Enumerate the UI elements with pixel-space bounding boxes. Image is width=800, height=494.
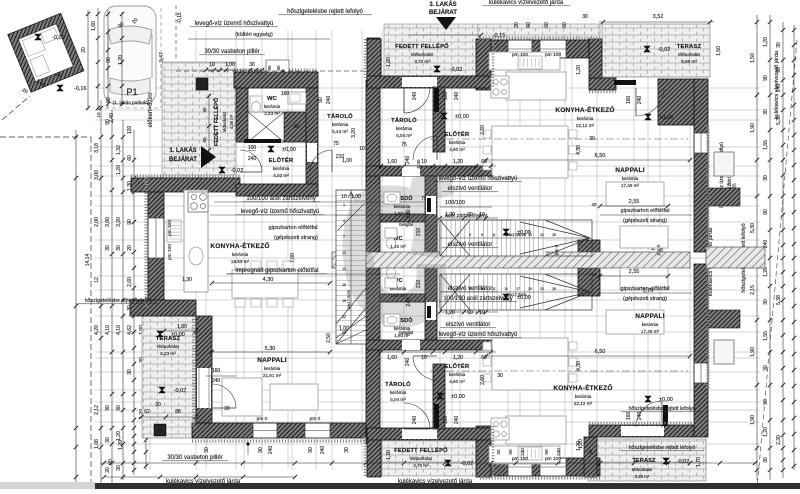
svg-text:üvegfal: üvegfal (399, 330, 413, 335)
svg-text:-0,02: -0,02 (450, 67, 463, 73)
svg-text:térburkolat: térburkolat (411, 52, 433, 57)
svg-text:NAPPALI: NAPPALI (257, 357, 286, 364)
svg-text:1,20: 1,20 (386, 57, 392, 67)
svg-text:5,30: 5,30 (416, 159, 421, 168)
svg-text:1,00: 1,00 (351, 194, 361, 200)
svg-text:elszívó ventilátor: elszívó ventilátor (448, 242, 493, 248)
svg-text:pm 100: pm 100 (512, 52, 528, 58)
svg-text:30: 30 (588, 449, 593, 455)
svg-text:3,70 m²: 3,70 m² (414, 59, 430, 64)
svg-text:19,53 m²: 19,53 m² (231, 259, 250, 264)
svg-text:240: 240 (454, 416, 460, 425)
svg-text:17,49 m²: 17,49 m² (621, 183, 640, 188)
svg-text:FEDETT FELLÉPŐ: FEDETT FELLÉPŐ (394, 446, 448, 454)
svg-text:60: 60 (467, 212, 473, 218)
svg-text:30: 30 (496, 449, 501, 455)
svg-text:14: 14 (504, 287, 508, 291)
svg-text:2,43 m²: 2,43 m² (264, 111, 280, 116)
svg-text:hőszigetelésbe rejtett lefolyó: hőszigetelésbe rejtett lefolyó (629, 445, 696, 451)
svg-text:kerámia: kerámia (577, 116, 594, 121)
svg-text:1,90: 1,90 (750, 415, 756, 425)
svg-text:1,32: 1,32 (116, 145, 122, 155)
svg-text:30/30 vasbeton pillér: 30/30 vasbeton pillér (167, 455, 222, 461)
svg-text:240: 240 (212, 378, 221, 384)
svg-text:30: 30 (204, 447, 210, 453)
svg-text:75: 75 (333, 141, 339, 147)
svg-text:10: 10 (359, 146, 365, 152)
svg-text:4,20: 4,20 (94, 325, 100, 335)
svg-text:16: 16 (342, 283, 346, 287)
svg-text:100/100: 100/100 (445, 200, 465, 206)
svg-text:100/100 acél zártszelvény: 100/100 acél zártszelvény (443, 296, 512, 302)
svg-text:30: 30 (582, 14, 588, 20)
svg-text:1,50: 1,50 (716, 46, 722, 56)
svg-text:90: 90 (763, 75, 769, 81)
svg-text:2,55: 2,55 (629, 269, 640, 275)
svg-text:1,90: 1,90 (750, 347, 756, 357)
svg-text:30: 30 (116, 465, 122, 471)
svg-text:TÁROLÓ: TÁROLÓ (391, 116, 417, 124)
svg-text:1,20: 1,20 (576, 65, 582, 75)
svg-text:4,62: 4,62 (127, 325, 133, 335)
svg-text:térburkolat: térburkolat (678, 52, 700, 57)
svg-text:1,20: 1,20 (763, 267, 769, 277)
svg-text:1,30: 1,30 (182, 277, 192, 283)
svg-text:5,04 m²: 5,04 m² (390, 397, 406, 402)
svg-text:2,12: 2,12 (94, 405, 100, 415)
svg-text:pm 100: pm 100 (167, 220, 173, 236)
svg-text:4,60 m²: 4,60 m² (449, 379, 465, 384)
svg-text:5,98 m²: 5,98 m² (681, 59, 697, 64)
svg-text:kerámia: kerámia (449, 372, 466, 377)
svg-text:±0,00: ±0,00 (455, 114, 469, 120)
svg-text:kerámia: kerámia (642, 322, 659, 327)
svg-text:3. LAKÁS: 3. LAKÁS (429, 1, 456, 8)
svg-text:30: 30 (105, 245, 111, 251)
svg-text:100: 100 (248, 145, 257, 151)
svg-text:30: 30 (763, 299, 769, 305)
svg-text:90: 90 (258, 447, 264, 453)
svg-text:90: 90 (127, 219, 133, 225)
svg-text:120: 120 (127, 126, 133, 135)
svg-text:térburkolat: térburkolat (632, 467, 653, 472)
svg-text:kerámia: kerámia (264, 366, 281, 371)
svg-text:elszívó ventilátor: elszívó ventilátor (446, 322, 491, 328)
svg-text:3,18: 3,18 (94, 143, 100, 153)
svg-text:100: 100 (443, 92, 449, 101)
svg-text:kerámia: kerámia (394, 204, 411, 209)
svg-text:3,00: 3,00 (94, 170, 100, 180)
svg-text:FEDETT FELLÉPŐ: FEDETT FELLÉPŐ (212, 97, 220, 146)
svg-text:160: 160 (626, 412, 632, 421)
svg-text:1: 1 (343, 203, 345, 207)
svg-text:pm 100: pm 100 (167, 244, 173, 260)
svg-text:4,30: 4,30 (576, 145, 582, 155)
svg-text:levegő-víz üzemű hőszivattyú: levegő-víz üzemű hőszivattyú (439, 332, 518, 338)
svg-text:20: 20 (105, 467, 111, 473)
svg-text:ELŐTÉR: ELŐTÉR (269, 156, 294, 164)
svg-text:2,60: 2,60 (480, 125, 486, 135)
svg-text:±0,00: ±0,00 (659, 397, 673, 403)
svg-text:20: 20 (528, 287, 532, 291)
svg-text:pm 100: pm 100 (545, 52, 561, 58)
svg-text:240: 240 (326, 96, 332, 105)
svg-text:5,30: 5,30 (750, 223, 756, 233)
svg-text:kerámia: kerámia (390, 390, 407, 395)
svg-text:240: 240 (454, 92, 460, 101)
svg-text:3,80: 3,80 (105, 217, 111, 227)
svg-text:-0,02: -0,02 (677, 459, 690, 465)
svg-text:30: 30 (344, 447, 350, 453)
svg-text:TÁROLÓ: TÁROLÓ (327, 112, 353, 120)
svg-text:16x17,5/29: 16x17,5/29 (346, 289, 351, 310)
svg-text:KONYHA-ÉTKEZŐ: KONYHA-ÉTKEZŐ (553, 383, 612, 392)
svg-text:10: 10 (209, 62, 215, 68)
svg-text:1,00: 1,00 (339, 326, 349, 332)
svg-text:levegő-víz üzemű hőszivattyú: levegő-víz üzemű hőszivattyú (195, 21, 274, 27)
svg-text:KONYHA-ÉTKEZŐ: KONYHA-ÉTKEZŐ (210, 241, 269, 250)
svg-text:1,00: 1,00 (342, 158, 352, 164)
svg-text:30: 30 (763, 175, 769, 181)
svg-text:(gépészeti strang): (gépészeti strang) (274, 235, 318, 241)
svg-text:kerámia: kerámia (273, 166, 290, 171)
svg-text:±0,00: ±0,00 (517, 230, 531, 236)
svg-text:2,15: 2,15 (750, 285, 756, 295)
svg-text:4,60 m²: 4,60 m² (449, 147, 465, 152)
svg-text:10: 10 (96, 112, 101, 118)
svg-text:10: 10 (421, 355, 427, 361)
svg-text:(gépészeti strang): (gépészeti strang) (623, 218, 667, 224)
svg-text:30: 30 (105, 437, 111, 443)
svg-text:26: 26 (552, 233, 556, 237)
svg-text:3,20: 3,20 (351, 128, 357, 138)
svg-text:90: 90 (106, 97, 112, 103)
svg-text:1,20: 1,20 (453, 159, 463, 165)
svg-text:90: 90 (116, 405, 122, 411)
svg-text:40: 40 (591, 202, 597, 207)
svg-text:WC: WC (267, 96, 278, 102)
svg-text:5,47: 5,47 (159, 52, 165, 62)
svg-text:pm 100: pm 100 (512, 456, 528, 462)
svg-text:30: 30 (763, 109, 769, 115)
svg-text:±0,00: ±0,00 (451, 394, 465, 400)
svg-text:180: 180 (281, 91, 290, 97)
svg-text:90: 90 (544, 449, 549, 455)
svg-text:75: 75 (401, 142, 407, 148)
svg-text:2: 2 (457, 233, 459, 237)
svg-text:1,55: 1,55 (763, 331, 769, 341)
svg-text:6,50: 6,50 (595, 349, 606, 355)
svg-text:4,02 m²: 4,02 m² (273, 173, 289, 178)
svg-text:előkert=5,0m: előkert=5,0m (148, 93, 154, 128)
svg-text:30: 30 (776, 42, 782, 48)
svg-text:1,20: 1,20 (763, 427, 769, 437)
svg-text:1,08: 1,08 (94, 439, 100, 449)
svg-text:5,96 m²: 5,96 m² (635, 474, 650, 479)
svg-text:-0,15: -0,15 (177, 12, 183, 24)
svg-text:impregnált gipszkarton előtétf: impregnált gipszkarton előtétfal (235, 268, 318, 274)
svg-text:1,70: 1,70 (696, 457, 702, 467)
svg-text:4,30: 4,30 (576, 361, 582, 371)
svg-text:240: 240 (268, 446, 274, 455)
svg-text:kerámia: kerámia (332, 122, 349, 127)
svg-text:ELŐTÉR: ELŐTÉR (445, 130, 470, 138)
svg-text:22,12 m²: 22,12 m² (574, 401, 593, 406)
svg-text:48: 48 (293, 124, 299, 130)
svg-text:10: 10 (421, 159, 427, 165)
svg-text:20: 20 (514, 22, 520, 28)
svg-text:-0,02: -0,02 (174, 388, 187, 394)
svg-text:2,60: 2,60 (480, 375, 486, 385)
svg-text:pm 0: pm 0 (257, 416, 268, 422)
svg-text:30: 30 (763, 457, 769, 463)
svg-text:gipszkarton előtétfal: gipszkarton előtétfal (269, 225, 318, 231)
svg-text:2,30: 2,30 (776, 435, 782, 445)
svg-text:1,20: 1,20 (116, 165, 122, 175)
svg-text:5: 5 (469, 233, 471, 237)
svg-text:(1. lakás parkoló): (1. lakás parkoló) (113, 100, 150, 106)
svg-text:1,00: 1,00 (225, 62, 235, 68)
svg-text:4,10: 4,10 (116, 325, 122, 335)
svg-text:23: 23 (540, 287, 544, 291)
svg-text:20: 20 (127, 245, 133, 251)
svg-text:1,20: 1,20 (445, 212, 455, 218)
svg-text:(gépészeti strang): (gépészeti strang) (623, 296, 667, 302)
svg-text:2,55: 2,55 (629, 199, 640, 205)
svg-text:90: 90 (105, 405, 111, 411)
svg-text:TÁROLÓ: TÁROLÓ (385, 380, 411, 388)
svg-text:240: 240 (248, 156, 257, 162)
svg-text:240: 240 (412, 92, 418, 101)
svg-text:22: 22 (342, 315, 346, 319)
svg-text:40: 40 (591, 272, 597, 277)
svg-text:1,20: 1,20 (386, 450, 392, 460)
svg-text:3,70 m²: 3,70 m² (413, 463, 429, 468)
svg-text:hőszigetelésbe rejtett lefolyó: hőszigetelésbe rejtett lefolyó (287, 9, 363, 15)
svg-text:1,20: 1,20 (118, 440, 124, 450)
svg-text:kerámia: kerámia (396, 126, 413, 131)
svg-text:levegő-víz üzemű hőszivattyú: levegő-víz üzemű hőszivattyú (439, 176, 518, 182)
svg-text:240: 240 (637, 96, 643, 105)
svg-text:kulékavics vízelvezető járda: kulékavics vízelvezető járda (774, 50, 780, 119)
svg-text:térburkolat: térburkolat (410, 456, 432, 461)
svg-text:BEJÁRAT: BEJÁRAT (429, 9, 457, 16)
svg-text:1,20: 1,20 (116, 431, 122, 441)
svg-text:90: 90 (202, 107, 207, 113)
svg-text:7,60: 7,60 (290, 253, 296, 263)
svg-text:1,50: 1,50 (750, 53, 756, 63)
svg-text:kerámia: kerámia (575, 394, 592, 399)
svg-text:4,30: 4,30 (263, 277, 274, 283)
svg-text:30/30 vasbeton pillér: 30/30 vasbeton pillér (204, 49, 259, 55)
svg-text:elszívó ventilátor: elszívó ventilátor (448, 286, 493, 292)
svg-text:elszívó ventilátor: elszívó ventilátor (448, 186, 493, 192)
svg-text:90: 90 (763, 399, 769, 405)
svg-text:60: 60 (267, 65, 272, 71)
svg-text:NAPPALI: NAPPALI (615, 167, 644, 174)
svg-text:-0,15: -0,15 (52, 35, 65, 41)
svg-text:P1: P1 (126, 87, 137, 97)
svg-text:-0,02: -0,02 (231, 168, 244, 174)
svg-text:pm 0: pm 0 (656, 244, 662, 255)
svg-text:22,12 m²: 22,12 m² (576, 123, 595, 128)
svg-text:30: 30 (116, 245, 122, 251)
svg-text:±0,00: ±0,00 (659, 115, 673, 121)
svg-text:1,20: 1,20 (578, 439, 584, 449)
svg-text:17: 17 (516, 287, 520, 291)
svg-text:60: 60 (276, 65, 281, 71)
svg-text:hőszigetelésbe rejtett lefolyó: hőszigetelésbe rejtett lefolyó (629, 406, 696, 412)
svg-text:FEDETT FELLÉPŐ: FEDETT FELLÉPŐ (395, 42, 449, 50)
svg-text:ELŐTÉR: ELŐTÉR (445, 362, 470, 370)
svg-text:±0,00: ±0,00 (171, 332, 185, 338)
svg-text:30: 30 (497, 373, 503, 379)
svg-text:pm 0: pm 0 (310, 416, 321, 422)
svg-text:levegő-víz üzemű hőszivattyú: levegő-víz üzemű hőszivattyú (241, 209, 320, 215)
svg-text:4: 4 (343, 219, 345, 223)
svg-text:240: 240 (412, 416, 418, 425)
svg-text:210: 210 (416, 228, 422, 237)
svg-text:1,55: 1,55 (763, 140, 769, 150)
svg-text:90: 90 (763, 209, 769, 215)
svg-text:210: 210 (416, 280, 422, 289)
svg-text:kerámia: kerámia (622, 176, 639, 181)
svg-text:30: 30 (155, 402, 161, 408)
svg-text:1,40 m²: 1,40 m² (390, 293, 406, 298)
svg-text:2,60: 2,60 (127, 277, 133, 287)
svg-text:1,90: 1,90 (750, 123, 756, 133)
svg-text:240: 240 (405, 358, 411, 367)
svg-text:12: 12 (94, 277, 100, 283)
svg-text:60: 60 (127, 155, 133, 161)
svg-text:2,50: 2,50 (326, 333, 332, 343)
svg-text:30: 30 (127, 369, 133, 375)
svg-text:90: 90 (108, 459, 114, 465)
svg-text:3,20: 3,20 (116, 217, 122, 227)
svg-text:19: 19 (342, 299, 346, 303)
svg-text:240: 240 (520, 448, 525, 456)
svg-text:10: 10 (479, 310, 485, 316)
svg-text:62: 62 (144, 409, 150, 415)
svg-text:1,60: 1,60 (387, 355, 397, 361)
svg-text:60: 60 (562, 22, 568, 28)
svg-text:pm 100: pm 100 (545, 456, 561, 462)
svg-text:(kültéri egység): (kültéri egység) (235, 32, 273, 38)
svg-text:pm 0: pm 0 (554, 244, 560, 255)
svg-text:hőszigetelésbe rejtett lefolyó: hőszigetelésbe rejtett lefolyó (85, 298, 152, 304)
svg-text:60: 60 (202, 137, 207, 143)
svg-text:2,40: 2,40 (109, 113, 115, 123)
svg-text:NAPPALI: NAPPALI (635, 313, 664, 320)
svg-text:kerámia: kerámia (232, 252, 249, 257)
svg-text:10: 10 (341, 194, 347, 200)
svg-text:100/100 acél zártszelvény: 100/100 acél zártszelvény (246, 196, 315, 202)
svg-text:-0,16: -0,16 (74, 86, 87, 92)
svg-text:11: 11 (492, 287, 496, 291)
svg-text:160: 160 (212, 368, 221, 374)
svg-text:1,80: 1,80 (177, 324, 187, 330)
svg-text:60: 60 (544, 22, 550, 28)
svg-text:±0,00: ±0,00 (282, 147, 296, 153)
svg-text:térburkolat: térburkolat (222, 111, 227, 132)
svg-text:±0,00: ±0,00 (517, 295, 531, 301)
svg-text:6,50: 6,50 (595, 153, 606, 159)
svg-text:KONYHA-ÉTKEZŐ: KONYHA-ÉTKEZŐ (555, 105, 614, 114)
svg-text:kerámia: kerámia (264, 104, 281, 109)
svg-text:3,52: 3,52 (653, 14, 664, 20)
svg-text:10: 10 (479, 212, 485, 218)
svg-text:11: 11 (492, 233, 496, 237)
svg-text:90: 90 (318, 97, 324, 103)
svg-text:240: 240 (320, 446, 326, 455)
svg-text:30: 30 (224, 406, 230, 412)
svg-text:TERASZ: TERASZ (677, 44, 702, 50)
svg-text:26: 26 (552, 287, 556, 291)
svg-text:kulékavics vízelvezető járda: kulékavics vízelvezető járda (489, 0, 564, 6)
svg-text:1,60: 1,60 (387, 159, 397, 165)
svg-text:5,04 m²: 5,04 m² (396, 133, 412, 138)
svg-text:14,14: 14,14 (85, 254, 91, 267)
svg-text:17,49 m²: 17,49 m² (641, 329, 660, 334)
svg-text:térburkolat: térburkolat (157, 344, 179, 349)
svg-text:90: 90 (308, 447, 314, 453)
svg-text:240: 240 (556, 448, 561, 456)
svg-text:240: 240 (405, 156, 411, 165)
svg-text:üvegfal: üvegfal (399, 222, 413, 227)
svg-text:BEJÁRAT: BEJÁRAT (169, 156, 197, 163)
svg-text:1,20: 1,20 (445, 310, 455, 316)
svg-text:160: 160 (626, 96, 632, 105)
svg-text:30: 30 (249, 62, 255, 68)
svg-text:gipszkarton előtétfal: gipszkarton előtétfal (621, 208, 670, 214)
svg-text:23: 23 (540, 233, 544, 237)
svg-text:8,23 m²: 8,23 m² (160, 351, 176, 356)
svg-text:4,36 m²: 4,36 m² (229, 114, 234, 129)
svg-text:88: 88 (175, 409, 181, 415)
svg-text:20: 20 (81, 47, 87, 53)
svg-text:60: 60 (526, 22, 532, 28)
svg-text:240: 240 (406, 209, 412, 218)
svg-text:8: 8 (481, 233, 483, 237)
svg-text:2,00: 2,00 (94, 217, 100, 227)
svg-text:-0,02: -0,02 (461, 461, 474, 467)
svg-text:100: 100 (443, 416, 449, 425)
svg-text:5,44 m²: 5,44 m² (332, 129, 348, 134)
svg-text:5,38: 5,38 (776, 295, 782, 305)
svg-text:-0,02: -0,02 (658, 47, 671, 53)
svg-text:21,61 m²: 21,61 m² (263, 373, 282, 378)
svg-text:1,20: 1,20 (763, 37, 769, 47)
svg-text:-0,15: -0,15 (493, 33, 506, 39)
svg-text:4,10: 4,10 (105, 325, 111, 335)
svg-text:1,60: 1,60 (91, 21, 97, 31)
svg-text:60: 60 (467, 310, 473, 316)
svg-text:kerámia: kerámia (449, 140, 466, 145)
svg-text:1,20: 1,20 (453, 355, 463, 361)
svg-text:1,70: 1,70 (643, 288, 654, 294)
svg-text:90: 90 (106, 57, 112, 63)
svg-text:90: 90 (508, 449, 513, 455)
svg-text:240: 240 (406, 297, 412, 306)
svg-text:1. LAKÁS: 1. LAKÁS (169, 147, 196, 154)
svg-text:5,30: 5,30 (265, 346, 276, 352)
